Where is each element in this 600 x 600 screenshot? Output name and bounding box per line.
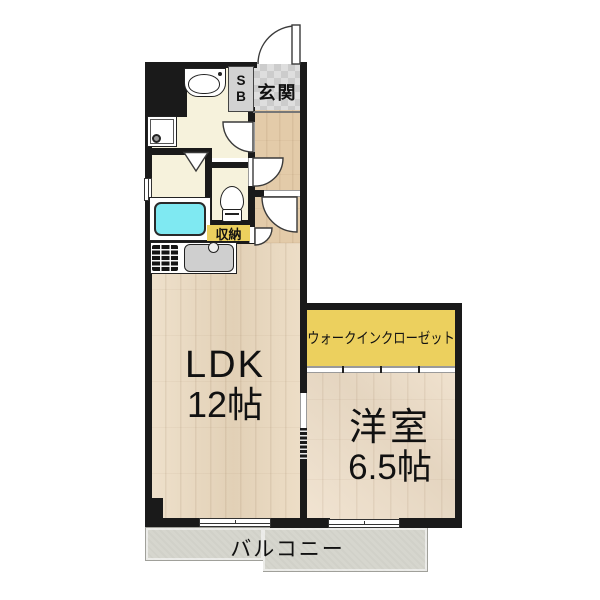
entrance-door-arc — [258, 26, 296, 64]
floor-plan: ウォークインクローゼット — [0, 0, 600, 600]
wall-hall-stub — [248, 190, 264, 197]
wall-ldk-bottom-left — [145, 518, 200, 527]
washroom-door-opening — [248, 122, 255, 152]
balcony-label-text: バルコニー — [230, 533, 345, 563]
toilet-base — [222, 209, 242, 222]
faucet-dot — [218, 72, 222, 76]
wall-western-bottom-right — [399, 518, 462, 528]
entrance-step-line — [253, 111, 300, 113]
entrance-label-text: 玄関 — [258, 79, 298, 105]
balcony-label: バルコニー — [210, 533, 365, 563]
ldk-label: LDK — [155, 346, 295, 386]
ldk-label-block: LDK 12帖 — [155, 346, 295, 424]
entrance-label: 玄関 — [253, 79, 302, 105]
wash-basin — [184, 68, 226, 97]
ldk-window — [199, 518, 271, 527]
wall-ldk-right-lower — [300, 462, 307, 518]
shoe-box: S B — [228, 66, 254, 112]
western-room-window — [328, 519, 400, 528]
toilet-door-opening — [248, 158, 255, 186]
wall-bottom-center — [270, 518, 330, 528]
washing-machine-pan — [147, 116, 177, 147]
ldk-size-label: 12帖 — [155, 386, 295, 424]
western-room-label-block: 洋室 6.5帖 — [320, 408, 460, 487]
walk-in-closet-floor: ウォークインクローゼット — [305, 308, 457, 367]
toilet-base-line — [225, 213, 239, 215]
sink-faucet — [208, 242, 219, 253]
shoe-box-label-s: S — [236, 73, 245, 89]
drain-circle — [152, 134, 161, 143]
walk-in-closet-label: ウォークインクローゼット — [307, 327, 455, 348]
storage-label: 収納 — [215, 224, 241, 243]
sliding-door-leaf — [300, 428, 307, 462]
storage-closet: 収納 — [207, 225, 250, 241]
hallway-floor — [253, 110, 302, 243]
wall-hall-right — [300, 62, 307, 393]
sliding-door-pocket — [300, 393, 307, 428]
western-room-size-label: 6.5帖 — [320, 449, 460, 487]
shoe-box-label-b: B — [236, 89, 246, 105]
bathtub — [154, 202, 206, 236]
hallway-door-opening — [264, 190, 300, 197]
wash-basin-bowl — [188, 74, 220, 94]
wall-wing-top — [300, 303, 462, 310]
entrance-door-leaf — [292, 25, 300, 64]
western-room-label: 洋室 — [320, 408, 460, 449]
wall-washroom-bath — [145, 148, 212, 155]
gas-stove — [152, 245, 178, 271]
